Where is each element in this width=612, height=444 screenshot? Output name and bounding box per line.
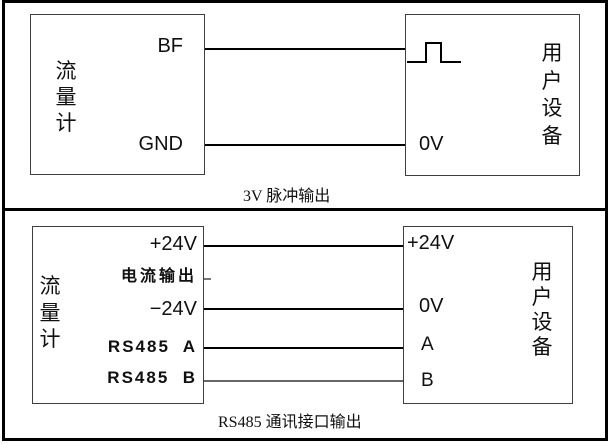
wiring-diagram: 流 量 计 BF GND 0V 用 户 设 备 3V 脉冲输出 流 量 计 +2… [0,0,612,444]
terminal-a-in: A [421,335,434,354]
panel-divider [2,208,608,211]
terminal-rs485-a-out: RS485 A [86,338,197,355]
pulse-output-caption: 3V 脉冲输出 [243,189,330,205]
terminal-gnd: GND [115,134,183,154]
wire-gnd-to-0v [205,144,405,146]
terminal-plus24v-in: +24V [407,233,454,253]
terminal-bf: BF [115,36,183,56]
flowmeter-label-rs485: 流 量 计 [37,274,63,354]
user-device-label-pulse: 用 户 设 备 [539,40,565,150]
terminal-0v-pulse: 0V [419,134,443,154]
wire-plus24v [204,245,403,247]
user-device-label-rs485: 用 户 设 备 [529,260,555,360]
current-output-stub [204,278,211,280]
terminal-0v-in: 0V [419,296,443,316]
rs485-output-caption: RS485 通讯接口输出 [218,415,362,431]
wire-rs485-b [204,380,403,382]
wire-minus24v-to-0v [204,308,403,310]
terminal-plus24v-out: +24V [86,234,197,254]
flowmeter-label: 流 量 计 [53,59,79,137]
terminal-b-in: B [421,371,434,390]
terminal-rs485-b-out: RS485 B [86,369,197,386]
terminal-minus24v-out: −24V [86,299,197,319]
pulse-waveform-icon [406,40,464,65]
terminal-current-output: 电流输出 [86,269,197,285]
wire-bf-to-pulse [205,48,405,50]
wire-rs485-a [204,347,403,349]
